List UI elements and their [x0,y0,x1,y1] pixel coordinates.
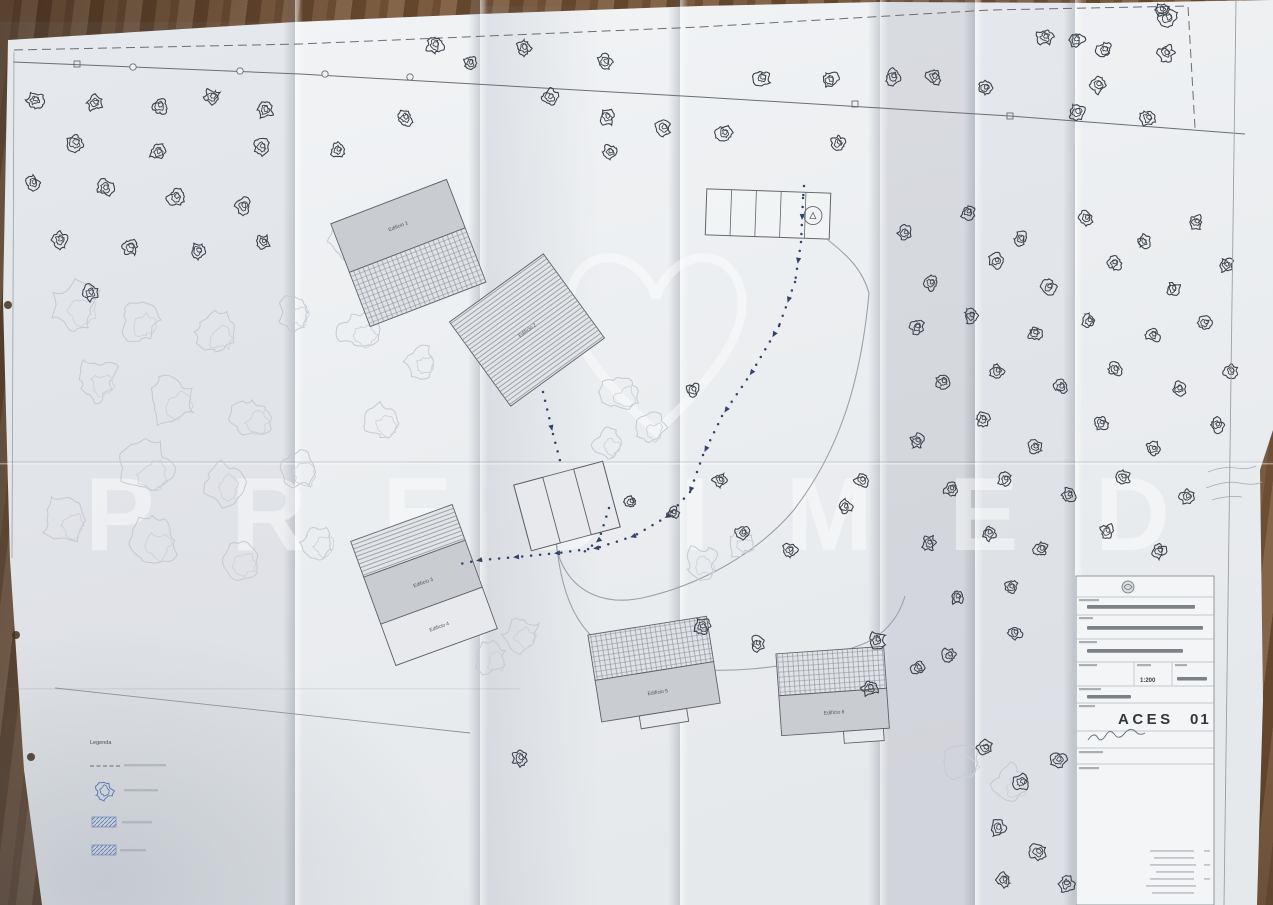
legend-hatch-symbol [92,817,116,827]
date-value [1177,677,1207,681]
field-value [1087,605,1195,609]
fence-post [322,71,328,77]
building-footprint: Edifício 6 [776,646,890,747]
legend-label [124,764,166,766]
site-plan-svg: PREDIMED Edifício 1Edifício 2Edifício 3E… [0,0,1273,905]
legend-label [122,821,152,823]
fold-panel-shade [975,0,1075,905]
fold-crease [868,0,880,905]
field-value [1087,626,1203,630]
fence-post [407,74,413,80]
fold-crease [480,0,488,905]
photo-of-site-plan: PREDIMED Edifício 1Edifício 2Edifício 3E… [0,0,1273,905]
drawing-code: ACES [1118,711,1174,728]
field-label [1137,664,1151,666]
fold-crease [0,688,520,690]
field-label [1079,641,1097,643]
punch-hole [4,301,12,309]
fence-post [130,64,136,70]
fold-crease [668,0,680,905]
legend-hatch-symbol [92,845,116,855]
punch-hole [12,631,20,639]
fold-crease [1063,0,1075,905]
drawing-number: 01 [1190,711,1211,728]
field-label [1079,688,1101,690]
field-label [1079,705,1095,707]
scale-value: 1:200 [1140,678,1156,684]
fold-crease [0,463,1273,465]
field-label [1079,751,1103,753]
field-label [1079,664,1097,666]
field-value [1087,649,1183,653]
title-block: 1:200 ACES 01 [1076,576,1214,905]
fold-crease [680,0,688,905]
fence-post [237,68,243,74]
fold-crease [975,0,983,905]
fold-crease [880,0,888,905]
field-value [1087,695,1131,699]
parking-area [705,189,831,239]
fold-crease [283,0,295,905]
fold-crease [468,0,480,905]
legend-title: Legenda [90,740,112,746]
field-label [1079,617,1093,619]
field-label [1079,767,1099,769]
punch-hole [27,753,35,761]
fold-crease [295,0,303,905]
field-label [1079,599,1099,601]
fold-crease [0,461,1273,463]
fold-crease [963,0,975,905]
field-label [1175,664,1187,666]
fold-panel-shade [880,0,975,905]
legend-label [120,849,146,851]
legend-label [124,789,158,791]
